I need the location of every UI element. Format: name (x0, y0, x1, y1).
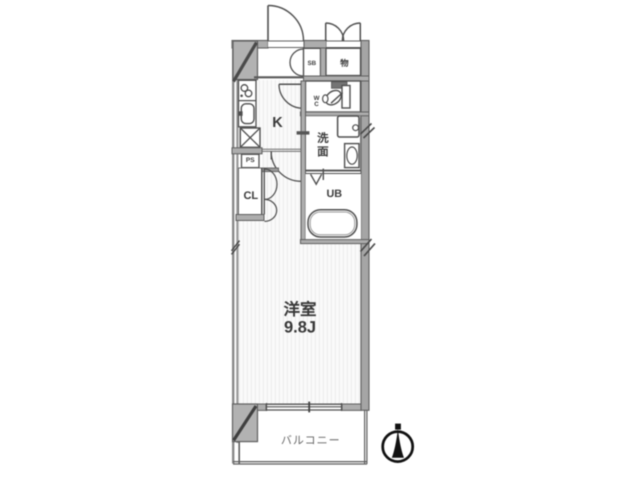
svg-text:C: C (314, 101, 319, 108)
svg-text:物: 物 (340, 58, 349, 68)
svg-text:CL: CL (243, 190, 258, 202)
svg-text:洗: 洗 (317, 132, 329, 145)
svg-text:K: K (272, 115, 283, 131)
svg-text:SB: SB (307, 60, 316, 67)
svg-text:9.8J: 9.8J (284, 319, 316, 337)
svg-text:洋室: 洋室 (284, 300, 317, 319)
svg-text:PS: PS (246, 157, 255, 164)
svg-text:面: 面 (317, 146, 329, 159)
svg-text:バルコニー: バルコニー (281, 434, 341, 447)
svg-text:UB: UB (326, 188, 342, 200)
